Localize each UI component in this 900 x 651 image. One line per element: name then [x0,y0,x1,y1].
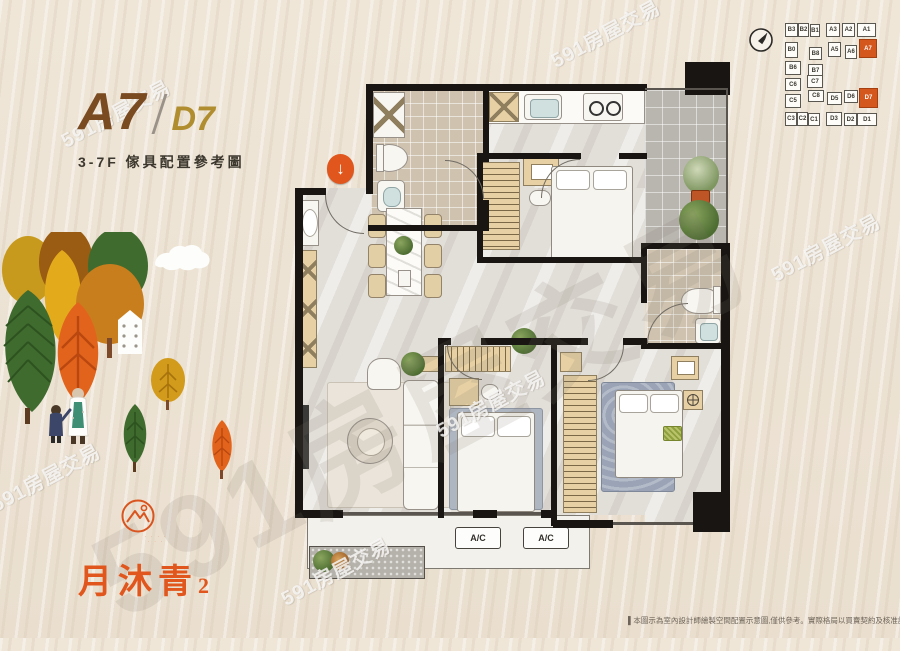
keyplan-unit-d7: D7 [859,88,878,108]
wall-bottom-living-a [295,510,343,518]
armchair [367,358,401,390]
wall-bathroom2-left [641,243,647,303]
title-divider [152,94,168,134]
wall-kitchen-bed2-b [619,153,647,159]
wall-bed2-left [477,153,483,263]
accent-pillow [663,426,682,441]
dining-chair [424,274,442,298]
toilet-1-tank [376,144,384,172]
keyplan-unit-d3: D3 [826,112,842,126]
watermark-591: 591房屋交易 [765,205,885,287]
floor-plan: ↓ [283,60,738,582]
wall-left-main [295,188,303,518]
balcony-right-rail-top [645,88,728,90]
wall-bathroom2-top [641,243,730,249]
ac-label-2: A/C [538,533,554,543]
master-pillow [650,394,679,413]
keyplan-unit-a1: A1 [857,23,876,37]
keyplan-unit-b2: B2 [798,23,809,37]
dining-chair [368,274,386,298]
keyplan-unit-b6: B6 [785,61,801,75]
wall-corridor-b [481,338,588,345]
sofa [403,380,439,510]
keyplan-unit-c8: C8 [808,90,824,102]
ac-label-1: A/C [470,533,486,543]
autumn-trees-illustration [0,232,245,487]
column-top-right [685,62,730,95]
ac-unit-2: A/C [523,527,569,549]
master-wardrobe [563,375,597,513]
stove [583,93,623,121]
dining-chair [368,244,386,268]
title-block: A7D7 3-7F 傢具配置參考圖 [78,86,245,172]
project-logo: · · · ·· · · 月沐青2 [78,498,258,603]
toilet-2-tank [713,286,721,314]
balcony-plant-icon [683,156,719,194]
keyplan-unit-a5: A5 [828,42,841,57]
keyplan-unit-d1: D1 [857,113,877,126]
master-vent-icon [683,390,703,410]
wall-bathroom1-left [366,84,373,194]
bed2-pillow [593,170,627,190]
compass-icon [748,27,774,53]
bed3-chair [481,384,499,400]
keyplan-unit-c2: C2 [797,112,808,126]
keyplan-unit-b0: B0 [785,42,798,58]
balcony-right-rail [726,90,728,243]
wall-kitchen-bed2-a [483,153,581,159]
sink-2 [695,318,721,344]
keyplan-unit-c6: C6 [785,78,801,91]
project-name: 月沐青2 [78,554,258,603]
wall-bed2-bottom [477,257,647,263]
ac-unit-1: A/C [455,527,501,549]
keyplan-unit-a6: A6 [845,45,857,59]
keyplan-unit-c3: C3 [785,112,797,126]
unit-title-d7: D7 [171,102,214,136]
wall-bathroom1-right-a [483,88,489,162]
entrance-arrow-icon: ↓ [327,154,354,184]
tv-panel [303,405,309,469]
bed3-pillow [497,416,531,437]
dining-table-plant-icon [394,236,413,255]
wall-living-bed3 [438,338,444,518]
living-plant-icon [401,352,425,376]
floor-subtitle: 3-7F 傢具配置參考圖 [78,152,245,172]
keyplan-unit-a3: A3 [826,23,840,37]
disclaimer-text: ▌本圖示為室內設計師繪製空間配置示意圖,僅供參考。實際格局以買賣契約及核准設計圖… [628,615,896,626]
logo-emblem-icon [120,498,156,534]
wall-entry-top [300,188,326,195]
dining-chair [424,244,442,268]
logo-caption: · · · ·· · · [96,534,216,544]
keyplan-unit-c5: C5 [785,94,801,108]
window-living-balcony [343,512,473,515]
unit-title-a7: A7 [78,86,146,138]
kitchen-cabinet [489,92,519,122]
keyplan-unit-c7: C7 [807,75,823,88]
keyplan-unit-a7: A7 [859,39,877,58]
cloud [155,245,210,270]
keyplan-unit-d2: D2 [844,113,857,126]
wall-bed3-master [551,338,557,526]
wall-bottom-master-a [553,520,613,528]
keyplan-unit-d6: D6 [844,90,858,103]
dining-table-tray [398,270,411,287]
master-shelf [560,352,582,372]
window-master [613,522,705,525]
bed3-desk [449,378,479,406]
keyplan-unit-a2: A2 [842,23,855,37]
keyplan-unit-b8: B8 [809,47,822,60]
shower-cabinet [373,92,405,138]
wall-bathroom1-bottom [368,225,489,231]
keyplan-unit-b1: B1 [810,24,820,37]
project-name-number: 2 [198,573,209,598]
master-pillow [619,394,648,413]
people-figures [49,388,88,444]
wall-bottom-bed3-a [483,510,497,518]
floorplan-page: { "title": { "main": "A7", "secondary": … [0,0,900,638]
keyplan-unit-b3: B3 [785,23,798,37]
wall-right-outer [721,243,730,499]
keyplan-diagram: B3B2B1A3A2A1B0B8A5A6A7B6B7C6C7C5C8D5D6D7… [740,15,900,133]
wall-top [366,84,647,91]
master-desk [671,356,699,380]
kitchen-sink [524,94,562,120]
planter-flower-icon [331,552,349,570]
coffee-table [347,418,393,464]
keyplan-unit-d5: D5 [827,92,842,105]
keyplan-unit-c1: C1 [808,113,820,126]
balcony-plant-icon [679,200,719,240]
window-bed3 [497,512,541,515]
bed3-pillow [461,416,495,437]
